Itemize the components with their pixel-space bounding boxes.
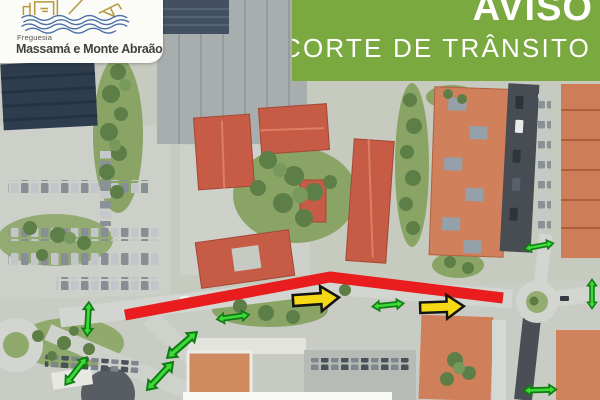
notice-banner: AVISO CORTE DE TRÂNSITO xyxy=(292,0,600,81)
logo-freguesia-label: Freguesia xyxy=(17,33,52,42)
two-way-traffic-arrow-6 xyxy=(372,299,404,312)
parish-logo: Freguesia Massamá e Monte Abraão xyxy=(0,0,163,63)
parish-emblem-icon xyxy=(16,0,146,34)
partial-caption-bar xyxy=(183,392,392,400)
one-way-direction-arrow-1 xyxy=(292,285,340,313)
two-way-traffic-arrow-8 xyxy=(588,279,597,308)
road-closure-notice-poster: Freguesia Massamá e Monte Abraão AVISO C… xyxy=(0,0,600,400)
notice-title: AVISO xyxy=(473,0,593,27)
two-way-traffic-arrow-4 xyxy=(163,328,200,363)
two-way-traffic-arrow-9 xyxy=(524,385,557,396)
two-way-traffic-arrow-2 xyxy=(82,302,94,336)
two-way-traffic-arrow-7 xyxy=(524,239,554,253)
two-way-traffic-arrow-3 xyxy=(61,354,91,388)
one-way-direction-arrow-2 xyxy=(420,294,465,319)
two-way-traffic-arrow-5 xyxy=(143,358,177,394)
notice-subtitle: CORTE DE TRÂNSITO xyxy=(292,33,591,64)
two-way-traffic-arrow-1 xyxy=(216,310,250,324)
logo-parish-name: Massamá e Monte Abraão xyxy=(16,42,162,56)
